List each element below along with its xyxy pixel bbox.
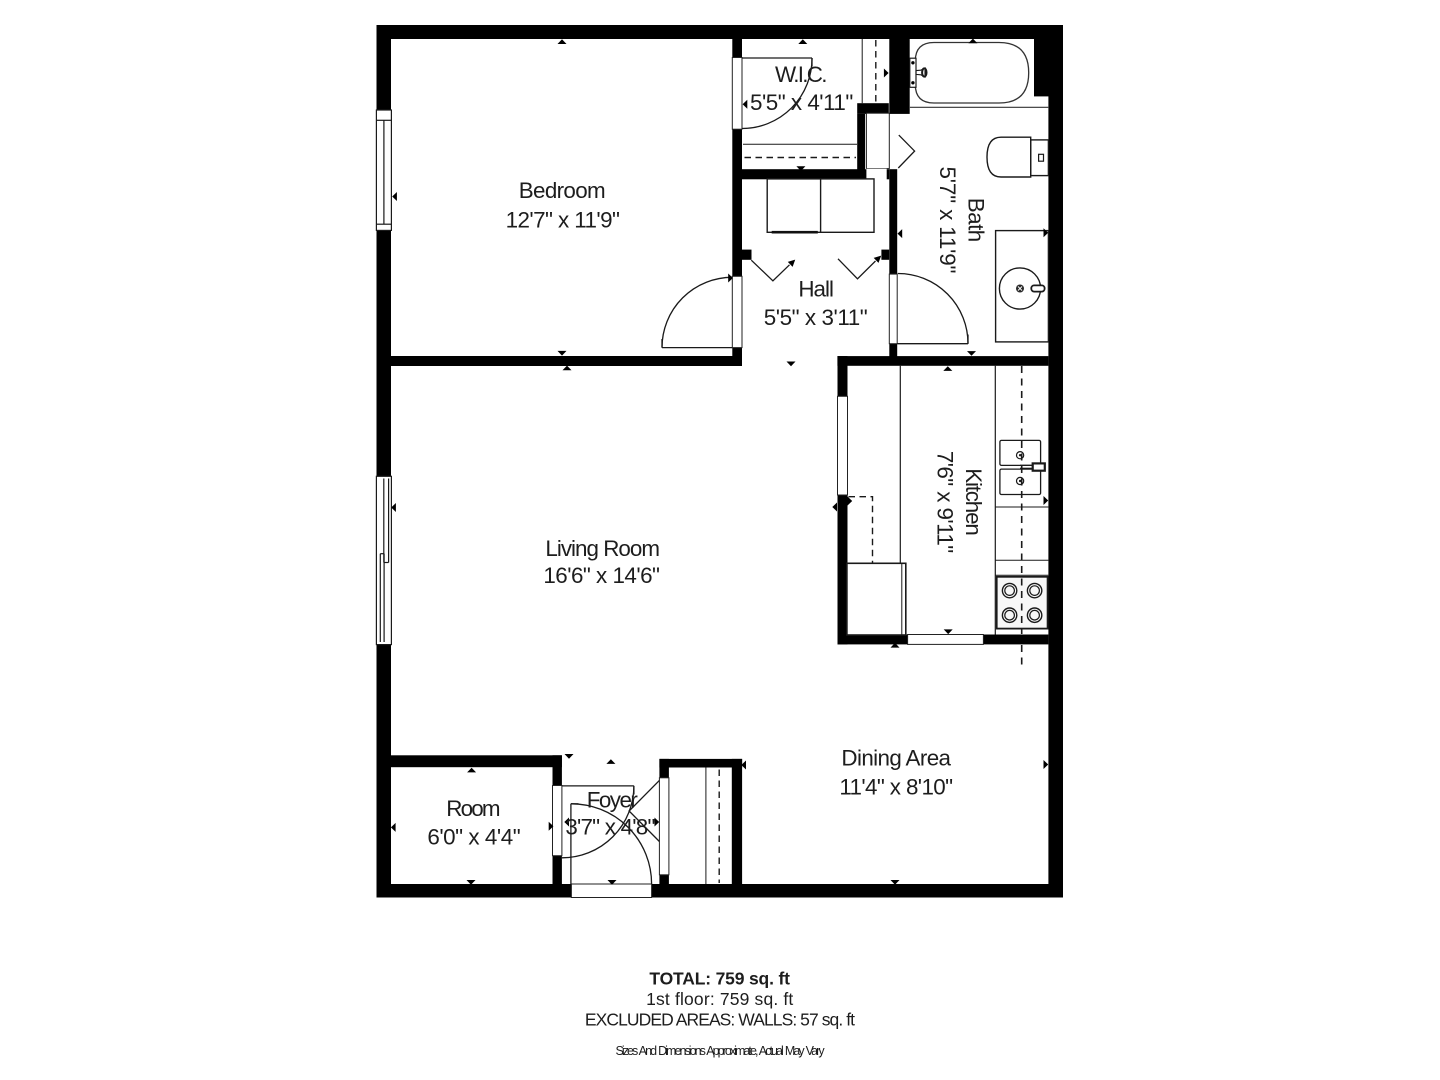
svg-text:11'4" x 8'10": 11'4" x 8'10" [839, 775, 952, 800]
svg-text:Bath: Bath [963, 198, 988, 242]
svg-text:Hall: Hall [798, 277, 833, 302]
svg-text:3'7" x 4'8": 3'7" x 4'8" [565, 815, 654, 840]
svg-text:16'6" x 14'6": 16'6" x 14'6" [543, 563, 659, 588]
svg-text:12'7" x 11'9": 12'7" x 11'9" [506, 208, 620, 233]
svg-text:Sizes And Dimensions Approxima: Sizes And Dimensions Approximate, Actual… [616, 1044, 826, 1058]
svg-text:Room: Room [446, 796, 500, 821]
svg-text:5'5" x 3'11": 5'5" x 3'11" [764, 305, 868, 330]
svg-text:W.I.C.: W.I.C. [775, 62, 826, 87]
svg-text:1st floor: 759 sq. ft: 1st floor: 759 sq. ft [646, 989, 793, 1009]
svg-text:5'7" x 11'9": 5'7" x 11'9" [935, 166, 960, 273]
svg-text:Living Room: Living Room [545, 536, 659, 561]
svg-text:EXCLUDED AREAS: WALLS: 57 sq.: EXCLUDED AREAS: WALLS: 57 sq. ft [585, 1010, 855, 1030]
svg-text:Foyer: Foyer [587, 787, 639, 812]
svg-text:Bedroom: Bedroom [519, 178, 605, 203]
svg-text:7'6" x 9'11": 7'6" x 9'11" [933, 451, 958, 553]
svg-text:5'5" x 4'11": 5'5" x 4'11" [750, 90, 853, 115]
svg-text:Dining Area: Dining Area [841, 745, 951, 770]
svg-text:TOTAL: 759 sq. ft: TOTAL: 759 sq. ft [649, 968, 790, 988]
svg-text:Kitchen: Kitchen [961, 468, 986, 534]
svg-text:6'0" x 4'4": 6'0" x 4'4" [427, 824, 520, 849]
